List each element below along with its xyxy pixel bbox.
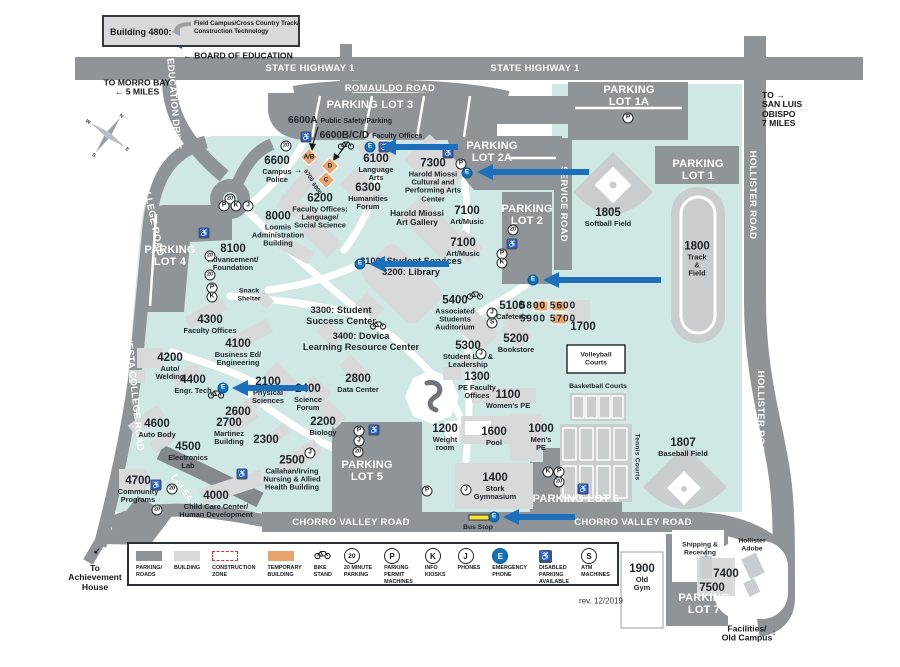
road-label-chorro-valley-road: CHORRO VALLEY ROAD (292, 518, 409, 528)
legend-item-atm-machines: SATM MACHINES (581, 549, 610, 579)
phone-icon: J (458, 549, 474, 563)
bike-stand-icon (338, 140, 355, 151)
building-number: 1807 (658, 438, 708, 450)
legend-label: ATM MACHINES (581, 565, 610, 579)
building-label-3400-dovica-learning-resource-: 3400: Dovica Learning Resource Center (303, 331, 419, 353)
building-label-2200: 2200Biology (309, 417, 336, 437)
building-label-snack-shelter: Snack Shelter (237, 287, 260, 302)
compass-w: W (84, 118, 92, 126)
disabled-parking-icon: ♿ (507, 239, 518, 250)
20-minute-parking-icon: 20 (205, 251, 216, 262)
temporary-building-label: A/B (304, 154, 315, 161)
temporary-building-label: D (328, 163, 333, 170)
map-legend: PARKING/ ROADSBUILDINGCONSTRUCTION ZONET… (127, 542, 619, 586)
building-4800-callout: Building 4800: Field Campus/Cross Countr… (102, 15, 300, 47)
building-name: 3400: Dovica Learning Resource Center (303, 331, 419, 353)
building-label-4600: 4600Auto Body (138, 419, 175, 439)
building-label-1807: 1807Baseball Field (658, 438, 708, 458)
building-label-6300: 6300Humanities Forum (348, 183, 388, 211)
building-name: Data Center (337, 386, 378, 394)
building-name: Advancement/ Foundation (208, 256, 259, 273)
road-label-tennis-courts: Tennis Courts (633, 433, 640, 480)
building-number: 7100 (446, 238, 480, 250)
parking-lot-label-parking-lot-1: PARKING LOT 1 (672, 159, 723, 183)
building-label-1000: 1000Men's PE (528, 424, 554, 452)
building-number: 1200 (432, 424, 458, 436)
building-name: Child Care Center/ Human Development (179, 503, 253, 520)
building-name: Men's PE (528, 436, 554, 453)
building-name: Baseball Field (658, 450, 708, 458)
building-number: 4000 (179, 491, 253, 503)
building-name: Campus Police (262, 168, 291, 185)
building-label-7100: 7100Art/Music (446, 238, 480, 258)
road-label-service-road: SERVICE ROAD (558, 166, 568, 242)
phone-icon: J (476, 349, 487, 360)
building-label-harold-miossi-art-gallery: Harold Miossi Art Gallery (390, 209, 444, 227)
parking-lot-label-parking-lot-7: PARKING LOT 7 (678, 593, 729, 617)
building-number: 2200 (309, 417, 336, 429)
legend-label: TEMPORARY BUILDING (268, 565, 302, 579)
building-name: 3300: Student Success Center (306, 305, 376, 327)
building-number: 6200 (292, 194, 347, 206)
building-name: Loomis Administration Building (252, 223, 304, 248)
bike-stand-icon (314, 549, 331, 563)
parking-permit-machine-icon: P (422, 486, 433, 497)
legend-item-temporary-building: TEMPORARY BUILDING (268, 549, 302, 579)
building-number: 1600 (481, 427, 507, 439)
emergency-phone-icon: E (528, 275, 539, 286)
building-name: Art/Music (450, 218, 484, 226)
building-label-5800-5600: 5800 5600 (520, 300, 576, 311)
disabled-parking-icon: ♿ (151, 480, 162, 491)
building-name: Martinez Building (214, 430, 244, 447)
20-minute-parking-icon: 20 (205, 270, 216, 281)
building-label-1900: 1900Old Gym (629, 564, 655, 592)
legend-item-info-kiosks: KINFO KIOSKS (425, 549, 446, 579)
note-board-of-education: ← BOARD OF EDUCATION (183, 51, 293, 60)
road-label-chorro-valley-road: CHORRO VALLEY ROAD (574, 518, 691, 528)
arrow-stem (491, 169, 589, 175)
20-minute-parking-icon: 20 (167, 484, 178, 495)
callout-title: Building 4800: (110, 27, 172, 37)
building-label-shipping-receiving: Shipping & Receiving (682, 541, 718, 556)
info-kiosk-icon: K (425, 549, 441, 563)
building-label-1600: 1600Pool (481, 427, 507, 447)
building-name: 5800 5600 (520, 300, 576, 311)
building-name: Track & Field (684, 253, 710, 278)
legend-item-20-minute-parking: 2020 MINUTE PARKING (344, 549, 372, 579)
building-number: 7400 (713, 569, 739, 581)
legend-label: PHONES (458, 565, 481, 572)
building-number: 1800 (684, 242, 710, 254)
building-number: 4100 (215, 339, 261, 351)
emergency-phone-icon: E (462, 168, 473, 179)
building-number: 7500 (699, 583, 725, 595)
building-number: 2300 (253, 435, 279, 447)
legend-label: DISABLED PARKING AVAILABLE (539, 565, 569, 585)
building-name: Softball Field (585, 220, 631, 228)
building-label-2300: 2300 (253, 435, 279, 447)
disabled-parking-icon: ♿ (539, 549, 552, 563)
building-label-8000: 8000Loomis Administration Building (252, 212, 304, 249)
legend-item-bike-stand: BIKE STAND (314, 549, 332, 579)
building-label-8100: 8100Advancement/ Foundation (208, 244, 259, 272)
disabled-parking-icon: ♿ (578, 484, 589, 495)
parking-lot-label-parking-lot-2a: PARKING LOT 2A (466, 141, 517, 165)
building-label-bus-stop: Bus Stop (463, 524, 493, 532)
building-number: 6600A (288, 115, 317, 126)
note-rev-12-2019: rev. 12/2019 (579, 598, 623, 607)
info-kiosk-icon: K (497, 258, 508, 269)
building-label-6600: 6600Campus Police (262, 156, 291, 184)
parking-lot-label-parking-lot-1a: PARKING LOT 1A (603, 85, 654, 109)
building-name: Electronics Lab (168, 454, 208, 471)
phone-icon: J (354, 436, 365, 447)
building-label-1100: 1100Women's PE (486, 390, 530, 410)
building-number: 4500 (168, 442, 208, 454)
building-label-7400: 7400 (713, 569, 739, 581)
building-name: Bookstore (498, 346, 535, 354)
campus-map: N E S W STATE HIGHWAY 1STATE HIGHWAY 1RO… (0, 0, 900, 667)
arrow-stem (517, 514, 575, 520)
parking-lot-label-parking-lot-5: PARKING LOT 5 (341, 460, 392, 484)
building-number: 7300 (405, 159, 461, 171)
building-number: 1300 (458, 372, 496, 384)
building-name: Harold Miossi Art Gallery (390, 209, 444, 227)
note-to-achievement-house: To Achievement House (68, 564, 122, 592)
building-label-4500: 4500Electronics Lab (168, 442, 208, 470)
building-name: Hollister Adobe (738, 537, 765, 552)
building-name: Science Forum (294, 396, 322, 413)
disabled-parking-icon: ♿ (199, 228, 210, 239)
building-label-2100: 2100Physical Sciences (252, 377, 284, 405)
atm-icon: S (581, 549, 597, 563)
road-label-state-highway-1: STATE HIGHWAY 1 (265, 64, 354, 74)
building-label-6100: 6100Language Arts (359, 154, 394, 182)
disabled-parking-icon: ♿ (369, 425, 380, 436)
legend-item-emergency-phone: EEMERGENCY PHONE (492, 549, 527, 579)
emergency-phone-icon: E (365, 142, 376, 153)
building-number: 1900 (629, 564, 655, 576)
20-minute-parking-icon: 20 (281, 141, 292, 152)
building-label-1400: 1400Stork Gymnasium (474, 473, 516, 501)
phone-icon: J (243, 201, 254, 212)
note-to-morro-bay-5-miles: TO MORRO BAY ← 5 MILES (104, 79, 171, 98)
building-label-7100: 7100Art/Music (450, 206, 484, 226)
legend-label: PARKING/ ROADS (136, 565, 162, 579)
building-label-1200: 1200Weight room (432, 424, 458, 452)
info-kiosk-icon: K (543, 467, 554, 478)
building-name: Humanities Forum (348, 195, 388, 212)
building-number: 1100 (486, 390, 530, 402)
building-label-3300-student-success-center: 3300: Student Success Center (306, 305, 376, 327)
building-number: 6100 (359, 154, 394, 166)
road-label-hollister-road: HOLLISTER ROAD (747, 151, 757, 240)
temporary-building-label: C (324, 177, 329, 184)
building-label-4300: 4300Faculty Offices (184, 315, 237, 335)
building-number: 6600 (262, 156, 291, 168)
building-name: Bus Stop (463, 524, 493, 532)
20-minute-parking-icon: 20 (353, 447, 364, 458)
building-label-2500: 2500Callahan/Irving Nursing & Allied Hea… (263, 456, 320, 493)
bike-stand-icon (467, 290, 484, 301)
building-number: 8000 (252, 212, 304, 224)
building-label-basketball-courts: Basketball Courts (569, 383, 627, 391)
note-item: ↓ (772, 628, 776, 637)
building-number: 1700 (570, 322, 596, 334)
building-label-4400: 4400Engr. Tech (174, 375, 211, 395)
compass-n: N (118, 113, 125, 120)
phone-icon: J (305, 448, 316, 459)
20-minute-parking-icon: 20 (508, 225, 519, 236)
arrow-stem (246, 385, 308, 391)
building-label-volleyball-courts: Volleyball Courts (580, 351, 611, 366)
emergency-phone-icon: E (218, 383, 229, 394)
20-minute-parking-icon: 20 (554, 477, 565, 488)
building-number: 5200 (498, 334, 535, 346)
road-label-hollister-road: HOLLISTER ROAD (755, 371, 765, 460)
building-name: Auto Body (138, 431, 175, 439)
building-name: Pool (481, 439, 507, 447)
emergency-phone-icon: E (492, 549, 508, 563)
building-label-1805: 1805Softball Field (585, 208, 631, 228)
building-number: 7100 (450, 206, 484, 218)
phone-icon: J (461, 485, 472, 496)
building-number: 1400 (474, 473, 516, 485)
parking-lot-label-parking-lot-2: PARKING LOT 2 (501, 204, 552, 228)
20-minute-parking-icon: 20 (152, 505, 163, 516)
emergency-phone-icon: E (489, 512, 500, 523)
building-number: 4300 (184, 315, 237, 327)
disabled-parking-icon: ♿ (301, 132, 312, 143)
atm-icon: S (487, 318, 498, 329)
building-number: 2700 (214, 418, 244, 430)
note-to-san-luis-obispo-7-miles: TO → SAN LUIS OBISPO 7 MILES (762, 91, 802, 129)
building-name: Shipping & Receiving (682, 541, 718, 556)
building-name: Snack Shelter (237, 287, 260, 302)
info-kiosk-icon: K (231, 201, 242, 212)
building-name: Business Ed/ Engineering (215, 351, 261, 368)
building-name: Weight room (432, 436, 458, 453)
bike-stand-icon (370, 320, 387, 331)
legend-label: PARKING PERMIT MACHINES (384, 565, 413, 585)
legend-item-building: BUILDING (174, 549, 200, 572)
note-item: → (294, 165, 303, 174)
building-number: 4400 (174, 375, 211, 387)
building-number: 4600 (138, 419, 175, 431)
parking-lot-label-parking-lot-6: PARKING LOT 6 (533, 494, 620, 506)
parking-lot-label-parking-lot-4: PARKING LOT 4 (144, 245, 195, 269)
building-label-1700: 1700 (570, 322, 596, 334)
building-label-7300: 7300Harold Miossi Cultural and Performin… (405, 159, 461, 204)
building-label-5400: 5400Associated Students Auditorium (435, 296, 474, 333)
swatch-bld-swatch (174, 549, 200, 563)
arrow-stem (557, 277, 661, 283)
legend-item-construction-zone: CONSTRUCTION ZONE (212, 549, 255, 579)
emergency-phone-icon: E (355, 259, 366, 270)
legend-label: INFO KIOSKS (425, 565, 446, 579)
building-label-2800: 2800Data Center (337, 374, 378, 394)
u-turn-arrow-icon (172, 21, 194, 36)
bus-stop-marker (469, 515, 489, 520)
building-label-1800: 1800Track & Field (684, 242, 710, 279)
compass-s: S (91, 152, 98, 159)
info-kiosk-icon: K (207, 292, 218, 303)
building-label-5900-5700: 5900 5700 (520, 313, 576, 324)
building-label-7500: 7500 (699, 583, 725, 595)
building-label-2700: 2700Martinez Building (214, 418, 244, 446)
building-number: 1805 (585, 208, 631, 220)
temporary-building: A/B (303, 151, 316, 164)
building-name: Harold Miossi Cultural and Performing Ar… (405, 170, 461, 203)
swatch-con-swatch (212, 549, 238, 563)
legend-label: EMERGENCY PHONE (492, 565, 527, 579)
parking-permit-machine-icon: P (384, 549, 400, 563)
building-name: Callahan/Irving Nursing & Allied Health … (263, 467, 320, 492)
swatch-road-swatch (136, 549, 162, 563)
building-label-hollister-adobe: Hollister Adobe (738, 537, 765, 552)
building-name: Faculty Offices (184, 327, 237, 335)
building-name: Basketball Courts (569, 383, 627, 391)
building-number: 6300 (348, 183, 388, 195)
note-facilities-old-campus: Facilities/ Old Campus (722, 625, 773, 644)
building-name: Women's PE (486, 402, 530, 410)
building-name: Stork Gymnasium (474, 485, 516, 502)
building-name: 5900 5700 (520, 313, 576, 324)
building-number: 4200 (156, 353, 185, 365)
building-number: 2800 (337, 374, 378, 386)
swatch-tmp-swatch (268, 549, 294, 563)
arrow-stem (383, 261, 449, 267)
building-name: Physical Sciences (252, 389, 284, 406)
building-label-6600b-c-d: 6600B/C/DFaculty Offices (320, 125, 423, 143)
building-name: Engr. Tech (174, 387, 211, 395)
legend-item-disabled-parking-available: ♿DISABLED PARKING AVAILABLE (539, 549, 569, 585)
compass-rose-icon: N E S W (81, 108, 135, 162)
building-name: Language Arts (359, 166, 394, 183)
building-name: Public Safety/Parking (320, 118, 392, 125)
arrow-stem (394, 144, 458, 150)
building-name: Old Gym (629, 576, 655, 593)
building-name: Associated Students Auditorium (435, 307, 474, 332)
road-label-romauldo-road: ROMAULDO ROAD (345, 84, 435, 94)
legend-item-parking-permit-machines: PPARKING PERMIT MACHINES (384, 549, 413, 585)
building-name: Volleyball Courts (580, 351, 611, 366)
disabled-parking-icon: ♿ (237, 469, 248, 480)
temporary-building: C (320, 174, 333, 187)
building-name: Biology (309, 429, 336, 437)
parking-permit-machine-icon: P (623, 113, 634, 124)
building-label-4100: 4100Business Ed/ Engineering (215, 339, 261, 367)
legend-item-parking-roads: PARKING/ ROADS (136, 549, 162, 579)
legend-item-phones: JPHONES (458, 549, 481, 572)
legend-label: BUILDING (174, 565, 200, 572)
20-minute-parking-icon: 20 (344, 549, 360, 563)
building-number: 1000 (528, 424, 554, 436)
legend-label: CONSTRUCTION ZONE (212, 565, 255, 579)
parking-permit-machine-icon: P (219, 201, 230, 212)
legend-label: 20 MINUTE PARKING (344, 565, 372, 579)
callout-text: Field Campus/Cross Country Track/ Constr… (194, 20, 300, 36)
building-label-5200: 5200Bookstore (498, 334, 535, 354)
note-item: ↙ (93, 546, 100, 555)
compass-e: E (124, 146, 131, 153)
legend-label: BIKE STAND (314, 565, 332, 579)
building-label-4000: 4000Child Care Center/ Human Development (179, 491, 253, 519)
road-label-state-highway-1: STATE HIGHWAY 1 (490, 64, 579, 74)
